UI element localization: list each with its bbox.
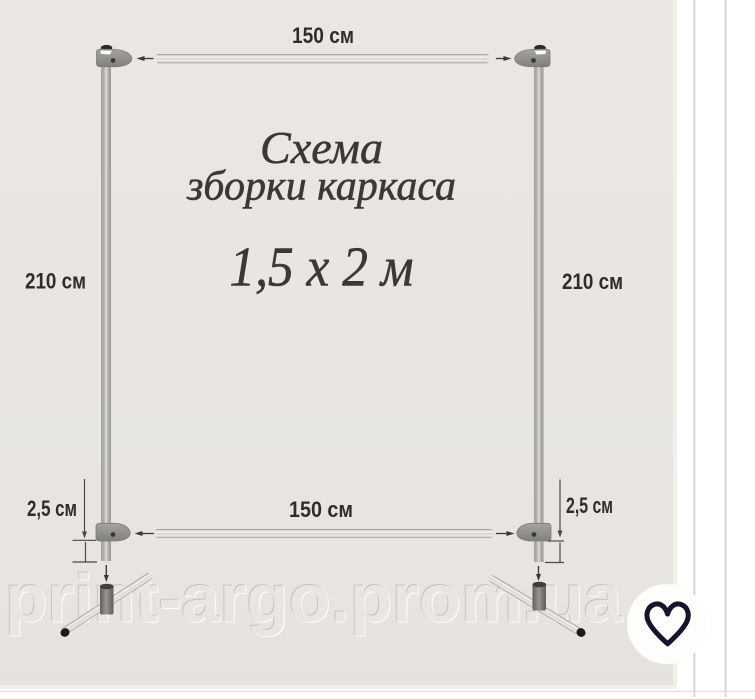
- svg-text:210 см: 210 см: [562, 269, 623, 294]
- svg-text:зборки каркаса: зборки каркаса: [186, 164, 456, 210]
- svg-text:150 см: 150 см: [289, 497, 353, 522]
- svg-text:2,5 см: 2,5 см: [27, 496, 77, 521]
- svg-text:210 см: 210 см: [25, 269, 86, 294]
- svg-text:2,5 см: 2,5 см: [566, 493, 613, 518]
- svg-text:150 см: 150 см: [292, 23, 354, 48]
- svg-text:1,5 х 2 м: 1,5 х 2 м: [230, 237, 414, 299]
